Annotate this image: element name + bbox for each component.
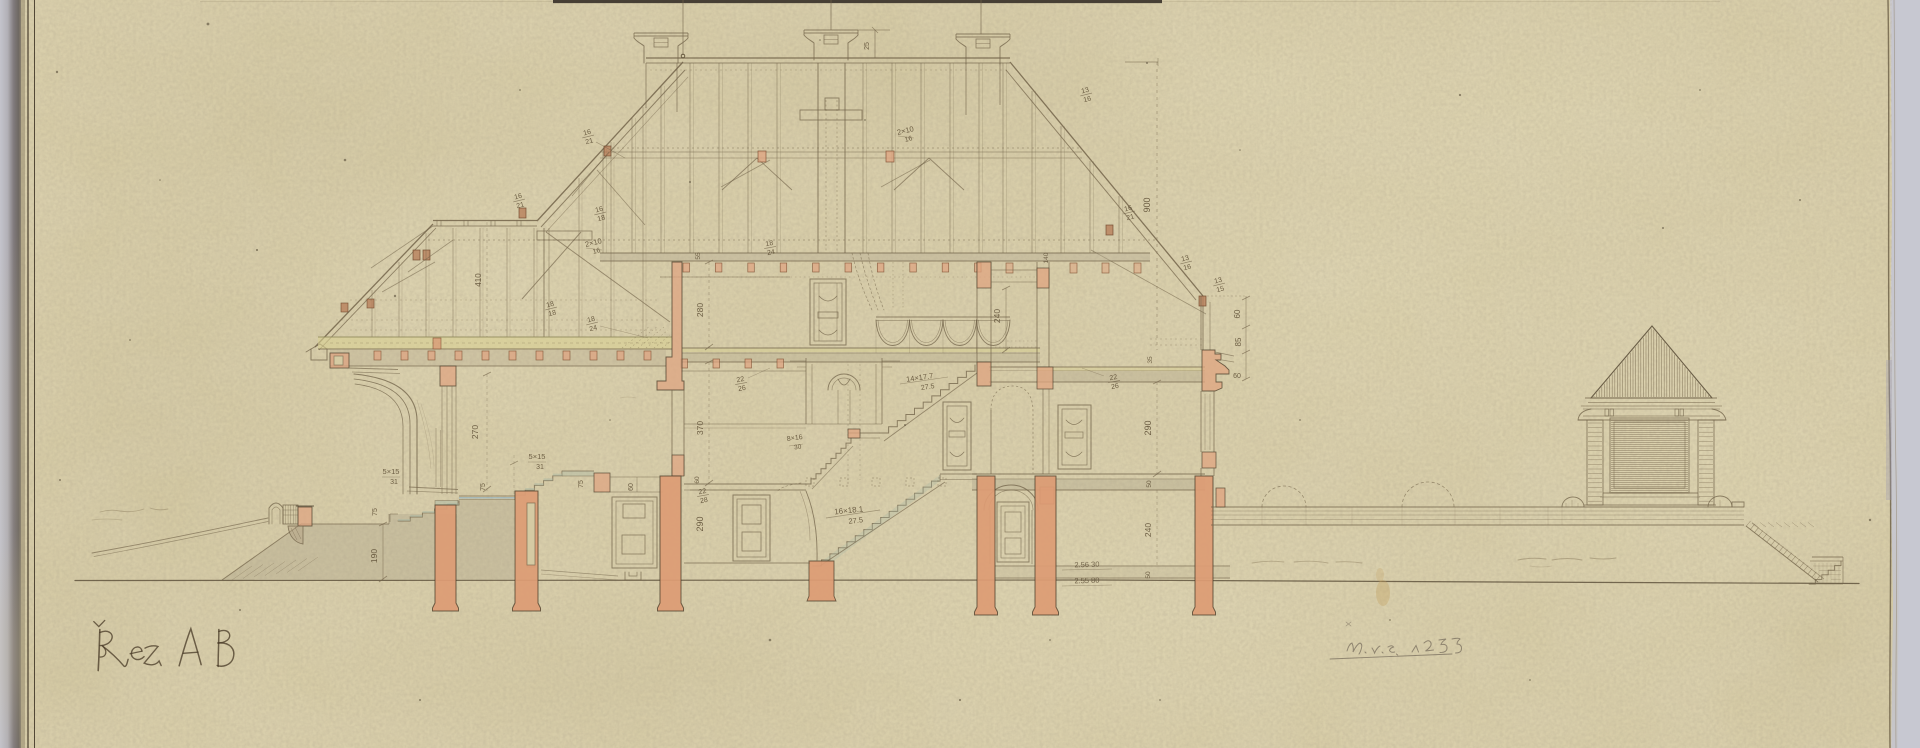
svg-text:26: 26 — [1111, 383, 1120, 391]
svg-text:60: 60 — [1233, 309, 1242, 318]
svg-text:240: 240 — [992, 309, 1002, 323]
svg-text:410: 410 — [474, 273, 483, 287]
svg-text:75: 75 — [372, 508, 379, 516]
svg-text:85: 85 — [1234, 337, 1243, 346]
svg-text:26: 26 — [738, 385, 747, 393]
svg-text:900: 900 — [1142, 197, 1152, 212]
svg-text:55: 55 — [695, 252, 702, 260]
svg-text:24: 24 — [767, 249, 776, 257]
svg-text:60: 60 — [628, 483, 635, 491]
svg-text:270: 270 — [470, 425, 480, 439]
svg-text:25: 25 — [864, 42, 871, 50]
svg-text:28: 28 — [700, 497, 709, 505]
svg-text:2.56 30: 2.56 30 — [1074, 560, 1099, 570]
svg-text:31: 31 — [390, 479, 398, 486]
svg-text:50: 50 — [1145, 571, 1152, 579]
svg-text:190: 190 — [369, 549, 379, 563]
svg-text:290: 290 — [695, 516, 705, 531]
svg-text:27.5: 27.5 — [848, 515, 863, 525]
svg-text:60: 60 — [694, 476, 701, 484]
svg-text:35: 35 — [1147, 356, 1154, 364]
svg-text:140: 140 — [1043, 252, 1050, 263]
svg-text:75: 75 — [480, 483, 487, 491]
svg-text:60: 60 — [1233, 373, 1241, 380]
svg-text:240: 240 — [1143, 523, 1153, 537]
svg-text:5×15: 5×15 — [383, 467, 400, 476]
svg-text:75: 75 — [578, 480, 585, 488]
svg-text:280: 280 — [695, 303, 705, 317]
svg-text:50: 50 — [1146, 480, 1153, 488]
svg-text:30: 30 — [794, 443, 803, 451]
svg-text:290: 290 — [1143, 420, 1153, 435]
svg-text:370: 370 — [695, 421, 705, 435]
svg-text:5×15: 5×15 — [529, 452, 546, 461]
svg-text:31: 31 — [536, 464, 544, 471]
svg-text:2.55 80: 2.55 80 — [1074, 576, 1099, 586]
